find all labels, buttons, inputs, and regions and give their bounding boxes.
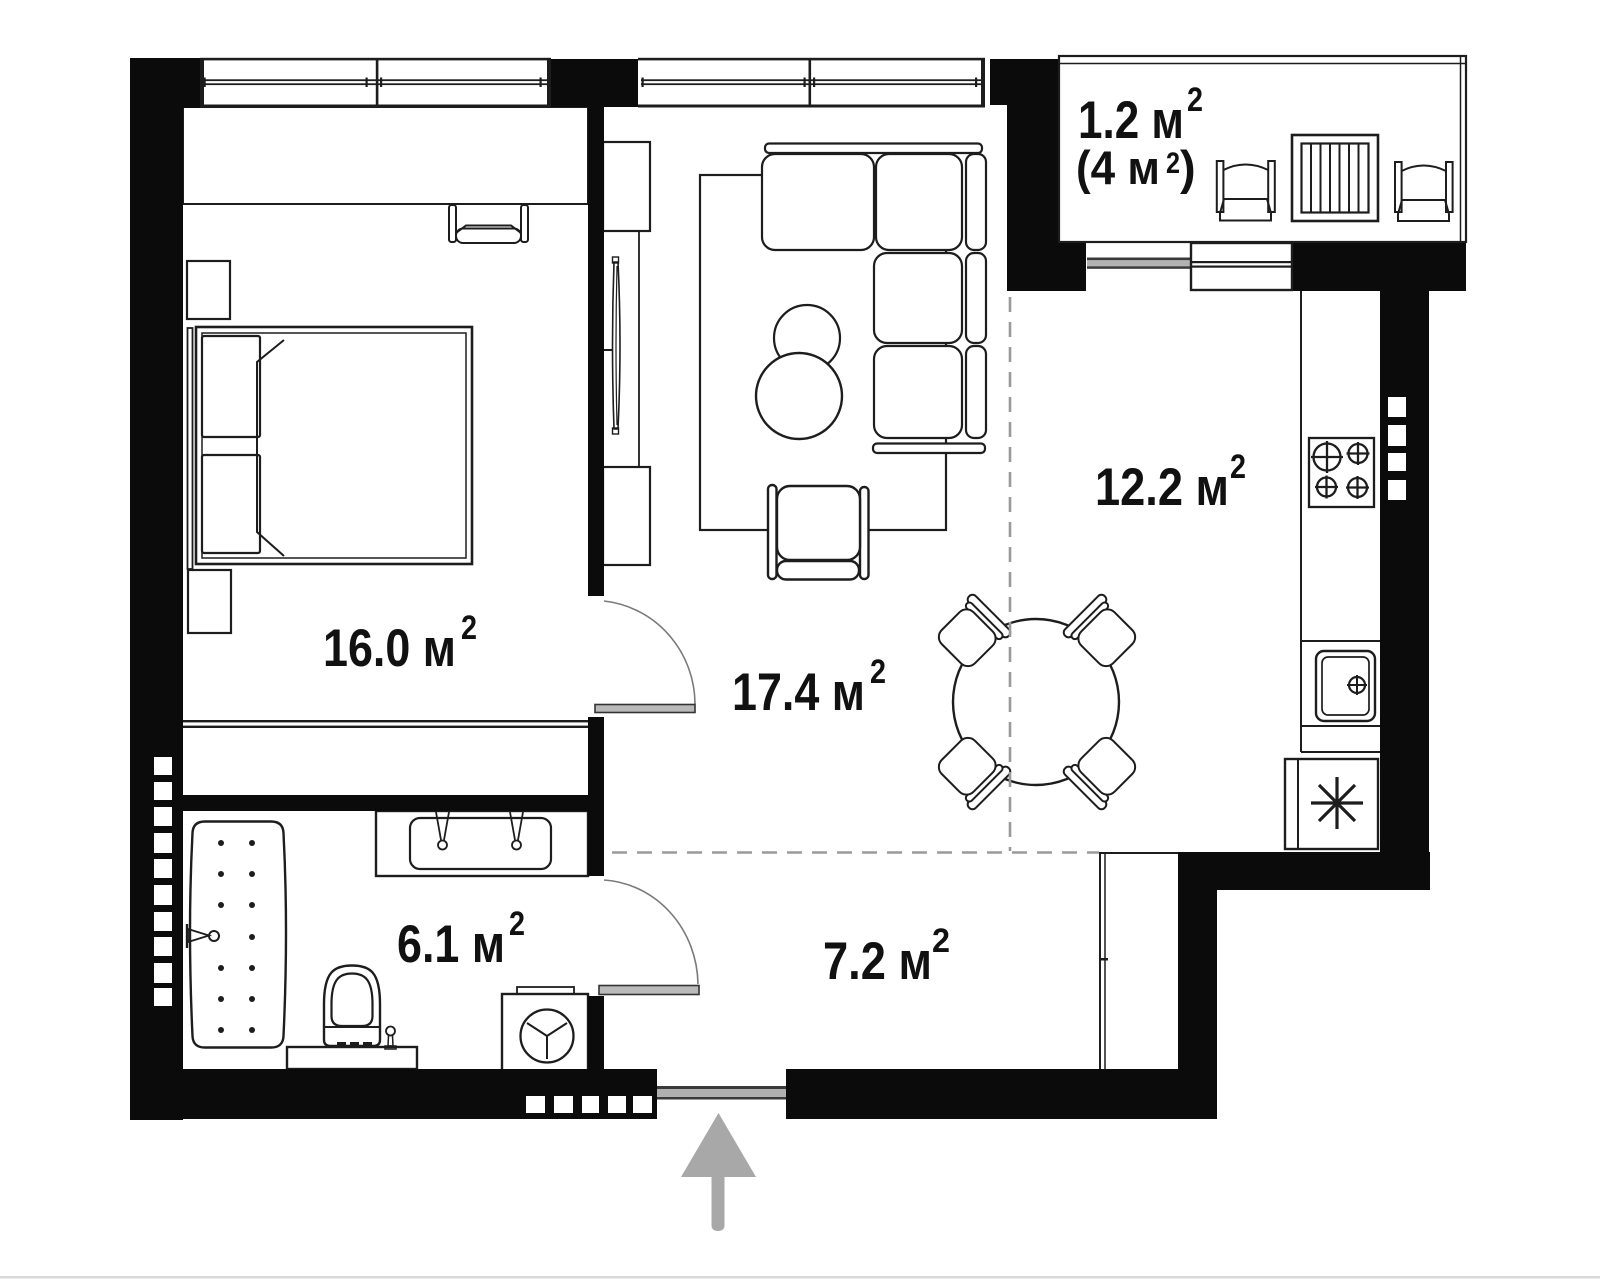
svg-text:2: 2	[509, 905, 525, 943]
svg-text:12.2 м: 12.2 м	[1095, 458, 1229, 517]
svg-text:2: 2	[461, 609, 477, 647]
svg-text:2: 2	[1166, 147, 1180, 180]
svg-text:6.1 м: 6.1 м	[397, 915, 505, 974]
svg-text:2: 2	[1230, 448, 1246, 486]
svg-text:2: 2	[1187, 81, 1203, 119]
svg-text:17.4 м: 17.4 м	[732, 663, 865, 722]
svg-text:2: 2	[870, 653, 886, 691]
svg-text:(4 м: (4 м	[1076, 141, 1160, 194]
svg-text:7.2 м: 7.2 м	[823, 932, 932, 991]
svg-text:): )	[1180, 141, 1196, 194]
svg-text:16.0 м: 16.0 м	[323, 619, 456, 678]
svg-text:2: 2	[932, 922, 950, 960]
